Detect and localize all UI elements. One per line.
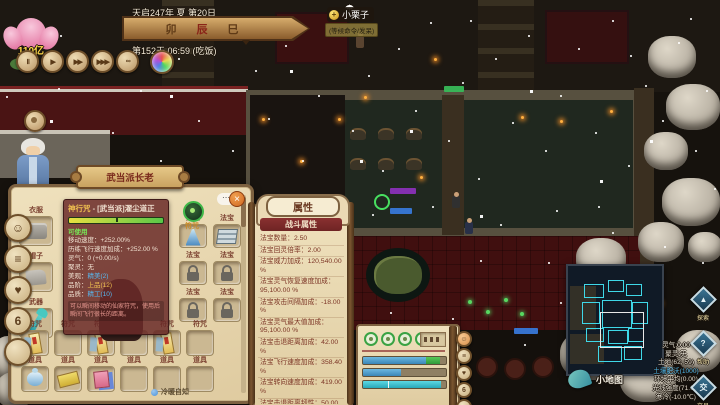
trade-diamond-button[interactable]: 交 交易 — [682, 376, 720, 405]
info-card-icon[interactable]: ≡ — [4, 245, 32, 273]
fabao-slot[interactable]: 法宝 — [213, 289, 241, 322]
close-icon[interactable]: × — [229, 191, 245, 207]
attribute-row: 法宝灵气恢复速度加成：95,100.00 % — [258, 277, 344, 297]
item-icon — [56, 370, 80, 388]
usable-label: 可使用 — [68, 226, 164, 236]
durability-bar — [68, 217, 164, 224]
speed-2x-button[interactable]: ▶▶ — [66, 50, 89, 73]
help-diamond-button[interactable]: ? 帮助 — [682, 332, 720, 366]
status-badge-icon — [364, 332, 378, 346]
spirit-orb-icon[interactable] — [456, 399, 472, 405]
panel-scrollbar[interactable] — [241, 195, 246, 393]
talisman-icon — [160, 332, 174, 355]
attribute-row: 法宝威力加成：120,540.00 % — [258, 257, 344, 277]
item-icon — [27, 372, 43, 386]
fabao-slot-grid: 法宝 法宝 法宝 法宝 法宝 法宝 — [179, 215, 241, 322]
attribute-row: 法宝回灵倍率：2.00 — [258, 246, 344, 258]
tooltip-stat-row: 灵气：0 (+0.00/s) — [68, 254, 164, 263]
game-viewport: 天启247年 夏 第20日 卯辰巳 第152天 06:59 (吃饭) 110亿 … — [0, 0, 720, 405]
attributes-panel: 属性 战斗属性 法宝数量：2.50法宝回灵倍率：2.00法宝威力加成：120,5… — [248, 192, 354, 405]
time-pointer-icon — [242, 40, 250, 45]
time-of-day-bar: 卯辰巳 — [122, 16, 310, 41]
mana-bar — [362, 368, 447, 377]
tooltip-stat-row: 移动速度：+252.00% — [68, 236, 164, 245]
attribute-row: 法宝击退距离韧性：50.00 % — [258, 399, 344, 405]
status-panel-tabs: ☺≡♥6 — [456, 331, 472, 405]
attribute-row: 法宝转向速度加成：419.00 % — [258, 378, 344, 398]
attribute-row: 法宝数量：2.50 — [258, 234, 344, 246]
time-period-label: 卯 — [166, 21, 177, 37]
hand-icon[interactable]: 6 — [4, 307, 32, 335]
fan-icon[interactable] — [566, 367, 593, 391]
day-time-label: 第152天 06:59 (吃饭) — [132, 44, 217, 57]
explore-diamond-button[interactable]: ▲ 探索 — [682, 288, 720, 322]
tooltip-stat-row: 历练飞行速度加成：+252.00 % — [68, 245, 164, 254]
npc-status-label: (等候命令/发呆) — [325, 23, 378, 37]
npc-name: 小栗子 — [342, 8, 369, 21]
fabao-slot[interactable]: 法宝 — [213, 252, 241, 285]
combat-section-header: 战斗属性 — [260, 218, 342, 231]
left-panel-title-banner: 武当派长老 — [76, 165, 184, 189]
fabao-item-icon — [216, 229, 238, 244]
portrait-icon[interactable]: ☺ — [456, 331, 472, 347]
spirit-sphere-button[interactable] — [150, 50, 174, 74]
fabao-slot[interactable]: 法宝 — [213, 215, 241, 248]
status-badge-icon — [398, 332, 412, 346]
equipment-panel: × 衣服 帽子 武器 法宝 法宝 — [8, 184, 254, 404]
panel-footer: 冷暖自知 — [151, 387, 189, 397]
fabao-item-icon — [187, 272, 199, 281]
speed-max-button[interactable]: ∞ — [116, 50, 139, 73]
attribute-row: 法宝飞行速度加成：358.40 % — [258, 358, 344, 378]
minimap-label: 小地图 — [596, 373, 623, 386]
hand-icon[interactable]: 6 — [456, 382, 472, 398]
tooltip-description: 可以瞬间移动的仙家符咒，使用后瞬间飞行很长的距离。 — [68, 301, 164, 321]
time-period-label: 辰 — [197, 21, 208, 37]
portrait-icon[interactable]: ☺ — [4, 214, 32, 242]
time-period-label: 巳 — [228, 21, 239, 37]
pause-button[interactable]: Ⅱ — [16, 50, 39, 73]
tooltip-stat-row: 品质：精工(10) — [68, 290, 164, 299]
diamond-icon: ? — [690, 330, 717, 357]
item-slot[interactable]: 道具 — [186, 357, 214, 392]
spirit-orb-icon[interactable] — [4, 338, 32, 366]
wooden-rail-right — [347, 202, 354, 405]
tooltip-stat-row: 聚灵：无 — [68, 263, 164, 272]
fabao-item-icon — [221, 272, 233, 281]
snowfall-large — [0, 0, 3, 3]
divider — [362, 350, 445, 352]
speed-3x-button[interactable]: ▶▶▶ — [91, 50, 114, 73]
attribute-row: 法宝击退距离加成：42.00 % — [258, 338, 344, 358]
play-button[interactable]: ▶ — [41, 50, 64, 73]
attribute-rows: 法宝数量：2.50法宝回灵倍率：2.00法宝威力加成：120,540.00 %法… — [258, 234, 344, 404]
item-type-label: 符咒 — [179, 221, 205, 231]
health-bar — [362, 356, 447, 365]
talisman-quality-badge — [183, 201, 204, 222]
footer-note: 冷暖自知 — [161, 387, 189, 397]
tooltip-stats: 移动速度：+252.00% 历练飞行速度加成：+252.00 % 灵气：0 (+… — [68, 236, 164, 299]
moon-orb-icon — [151, 389, 158, 396]
minimap-label-row: 小地图 — [568, 370, 623, 388]
npc-nameplate[interactable]: + 小栗子 — [327, 7, 374, 22]
item-slot[interactable]: 道具 — [87, 357, 115, 392]
hand-tool-button[interactable] — [24, 110, 46, 132]
mood-heart-icon[interactable]: ♥ — [456, 365, 472, 381]
progress-bar — [362, 380, 447, 389]
attribute-row: 法宝攻击间隔加成：-18.00 % — [258, 298, 344, 318]
status-badge-icon — [381, 332, 395, 346]
fabao-slot[interactable]: 法宝 — [179, 252, 207, 285]
tooltip-stat-row: 品阶：上品(12) — [68, 281, 164, 290]
unit-status-popup — [356, 324, 460, 405]
game-speed-controls: Ⅱ▶▶▶▶▶▶∞ — [16, 50, 139, 73]
item-icon — [93, 370, 110, 388]
diamond-icon: 交 — [690, 374, 717, 401]
status-display-box — [420, 332, 446, 347]
wooden-rail-left — [248, 202, 255, 405]
item-tooltip: 神行咒 - [武当派]濯尘道正 可使用 移动速度：+252.00% 历练飞行速度… — [63, 199, 169, 335]
mood-heart-icon[interactable]: ♥ — [4, 276, 32, 304]
fabao-item-icon — [221, 309, 233, 318]
talisman-slot[interactable]: 符咒 — [186, 321, 214, 356]
info-card-icon[interactable]: ≡ — [456, 348, 472, 364]
map-side-buttons: ▲ 探索 ? 帮助 交 交易 — [682, 288, 720, 405]
item-slot[interactable]: 道具 — [54, 357, 82, 392]
fabao-item-icon — [187, 309, 199, 318]
tooltip-stat-row: 美观：精美(2) — [68, 272, 164, 281]
diamond-icon: ▲ — [690, 286, 717, 313]
attributes-title: 属性 — [266, 196, 340, 217]
tooltip-title: 神行咒 - [武当派]濯尘道正 — [68, 203, 164, 214]
attribute-row: 法宝灵气最大值加成：95,100.00 % — [258, 318, 344, 338]
coin-icon: + — [329, 10, 339, 20]
fabao-slot[interactable]: 法宝 — [179, 289, 207, 322]
character-panel-tabs: ☺≡♥6 — [4, 214, 32, 366]
item-slot[interactable]: 道具 — [120, 357, 148, 392]
